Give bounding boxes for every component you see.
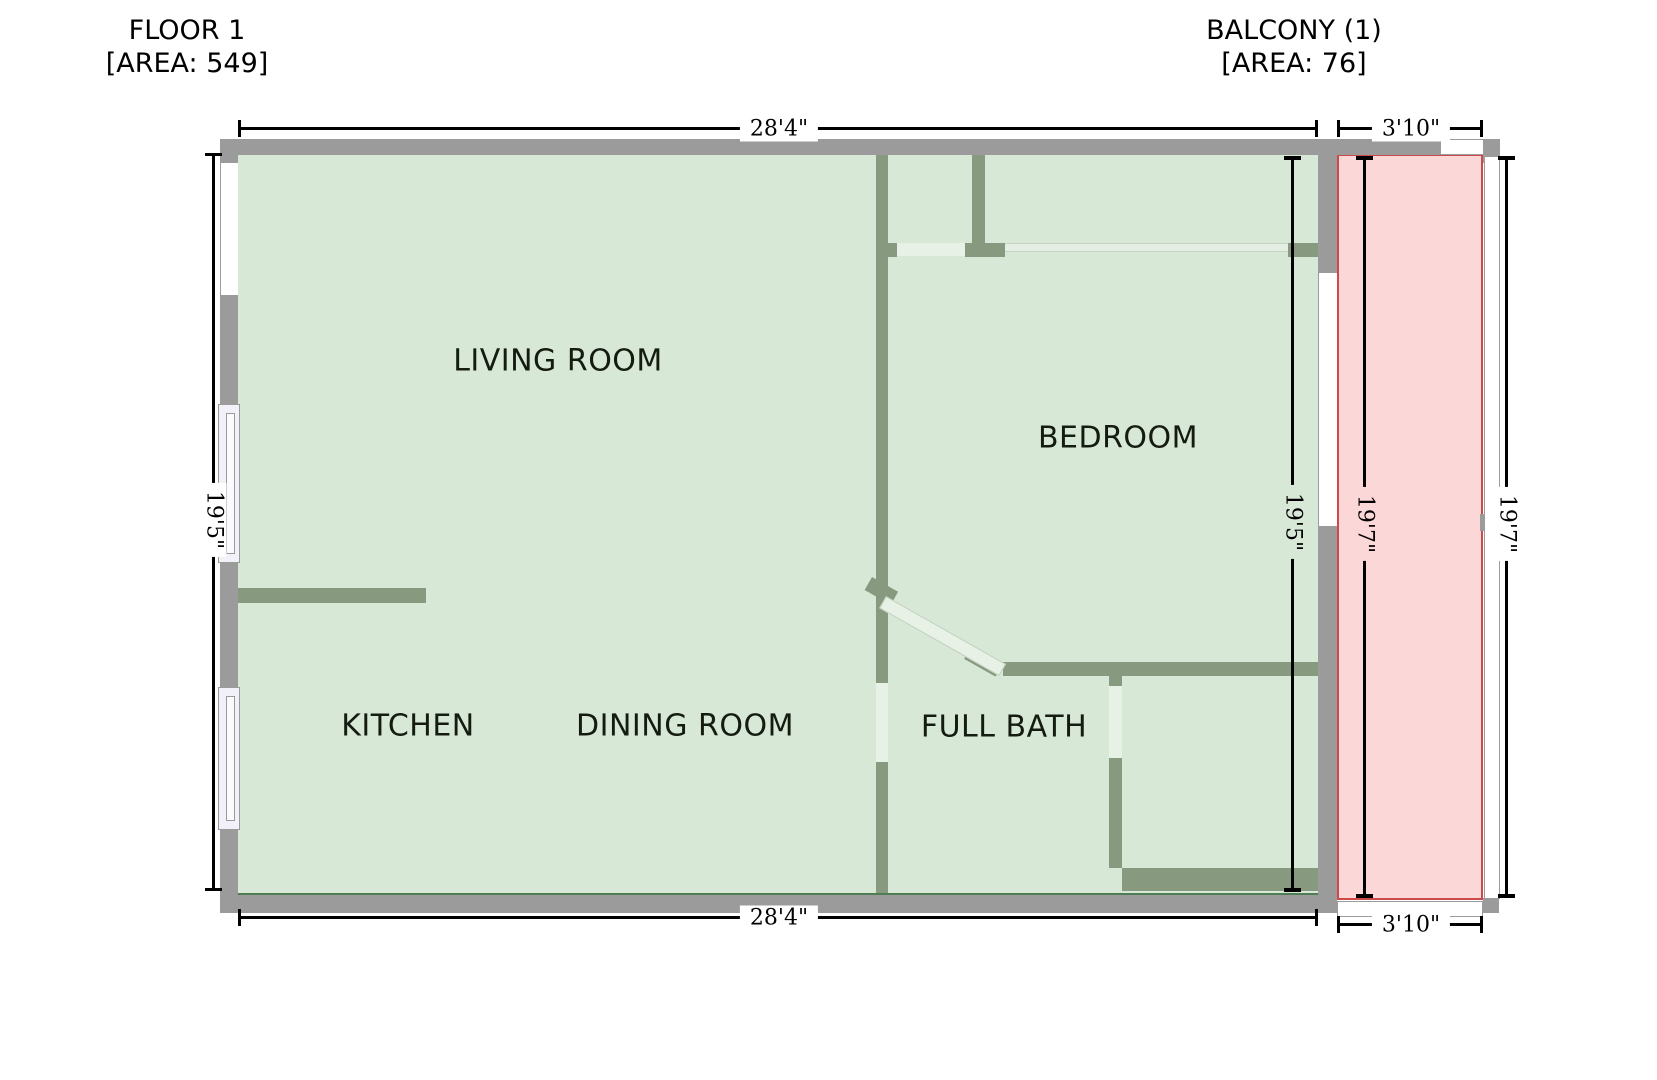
dim-tick — [1498, 156, 1515, 160]
room-label-kitchen: KITCHEN — [341, 709, 475, 744]
dim-tick — [1480, 120, 1483, 137]
balcony-corner-post-bottom — [1483, 898, 1499, 913]
dim-tick — [1498, 894, 1515, 898]
dim-tick — [1284, 888, 1301, 892]
dim-tick — [1356, 156, 1373, 160]
dim-tick — [1315, 909, 1318, 926]
door-gap-dining-bath — [876, 683, 888, 762]
dim-label-bedroom-height: 19'5" — [1281, 485, 1306, 559]
sliding-door-bedroom-closet — [1005, 243, 1288, 252]
window-pane — [226, 696, 235, 821]
room-label-bedroom: BEDROOM — [1038, 421, 1198, 456]
floor-title-area: [AREA: 549] — [106, 47, 269, 80]
dim-label-balcony-bottom-width: 3'10" — [1372, 913, 1450, 938]
window-left-lower — [218, 687, 240, 830]
dim-label-balcony-inner-height: 19'7" — [1353, 487, 1378, 561]
dim-tick — [1337, 120, 1340, 137]
dim-label-left-height: 19'5" — [202, 483, 227, 557]
wall-bath-top — [1003, 662, 1318, 676]
floor-title: FLOOR 1 [AREA: 549] — [106, 14, 269, 80]
dim-tick — [1480, 916, 1483, 933]
dim-tick — [1284, 156, 1301, 160]
balcony-title-area: [AREA: 76] — [1206, 47, 1382, 80]
room-label-dining-room: DINING ROOM — [576, 709, 794, 744]
balcony-door-opening — [1319, 273, 1337, 526]
room-label-full-bath: FULL BATH — [921, 710, 1087, 745]
dim-tick — [238, 909, 241, 926]
dim-tick — [1315, 120, 1318, 137]
wall-closet-piece-left — [888, 243, 897, 257]
door-gap-closet — [897, 243, 965, 256]
wall-kitchen-peninsula — [238, 588, 426, 603]
window-pane — [226, 413, 235, 554]
wall-bath-right — [1109, 758, 1122, 868]
left-wall-opening — [221, 163, 238, 295]
dim-label-bottom-width: 28'4" — [740, 906, 818, 931]
dim-tick — [1356, 894, 1373, 898]
dim-tick — [205, 888, 222, 891]
wall-bath-right-stub — [1109, 676, 1122, 686]
floor-area — [236, 153, 1320, 895]
wall-bedroom-divider-lower — [876, 762, 888, 893]
dim-label-balcony-top-width: 3'10" — [1372, 117, 1450, 142]
dim-label-top-width: 28'4" — [740, 117, 818, 142]
dim-tick — [1337, 916, 1340, 933]
room-label-living-room: LIVING ROOM — [453, 344, 663, 379]
floor-plan-canvas: FLOOR 1 [AREA: 549] BALCONY (1) [AREA: 7… — [0, 0, 1657, 1080]
wall-top — [220, 139, 1440, 155]
wall-closet-stub — [972, 155, 985, 243]
dim-tick — [205, 153, 222, 156]
wall-right-divider — [1318, 139, 1337, 913]
dim-label-balcony-outer-height: 19'7" — [1495, 487, 1520, 561]
door-gap-bath-closet — [1109, 686, 1122, 758]
floor-title-name: FLOOR 1 — [106, 14, 269, 47]
wall-closet-piece-mid — [965, 243, 1005, 257]
dim-tick — [238, 120, 241, 137]
balcony-title-name: BALCONY (1) — [1206, 14, 1382, 47]
balcony-title: BALCONY (1) [AREA: 76] — [1206, 14, 1382, 80]
